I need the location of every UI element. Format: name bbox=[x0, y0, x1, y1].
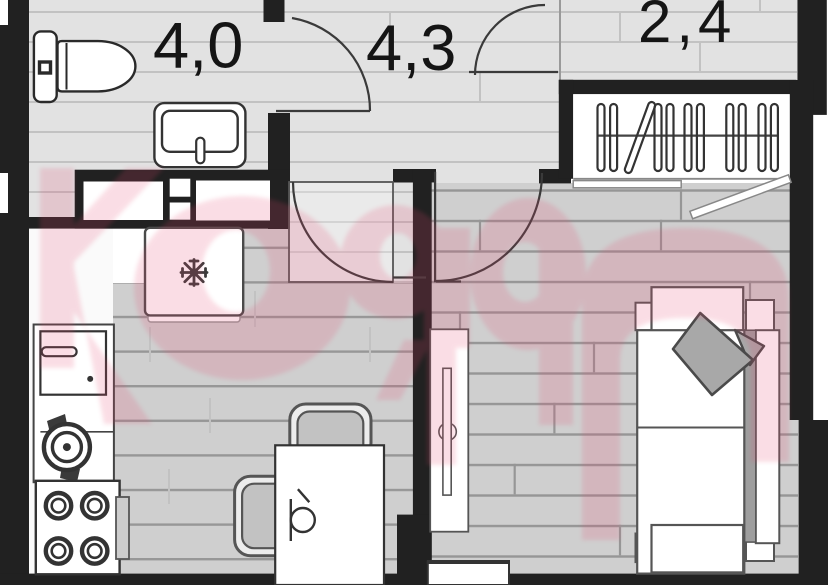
svg-text:2,4: 2,4 bbox=[638, 0, 736, 55]
svg-text:4,3: 4,3 bbox=[366, 11, 456, 84]
svg-text:4,0: 4,0 bbox=[153, 9, 243, 82]
